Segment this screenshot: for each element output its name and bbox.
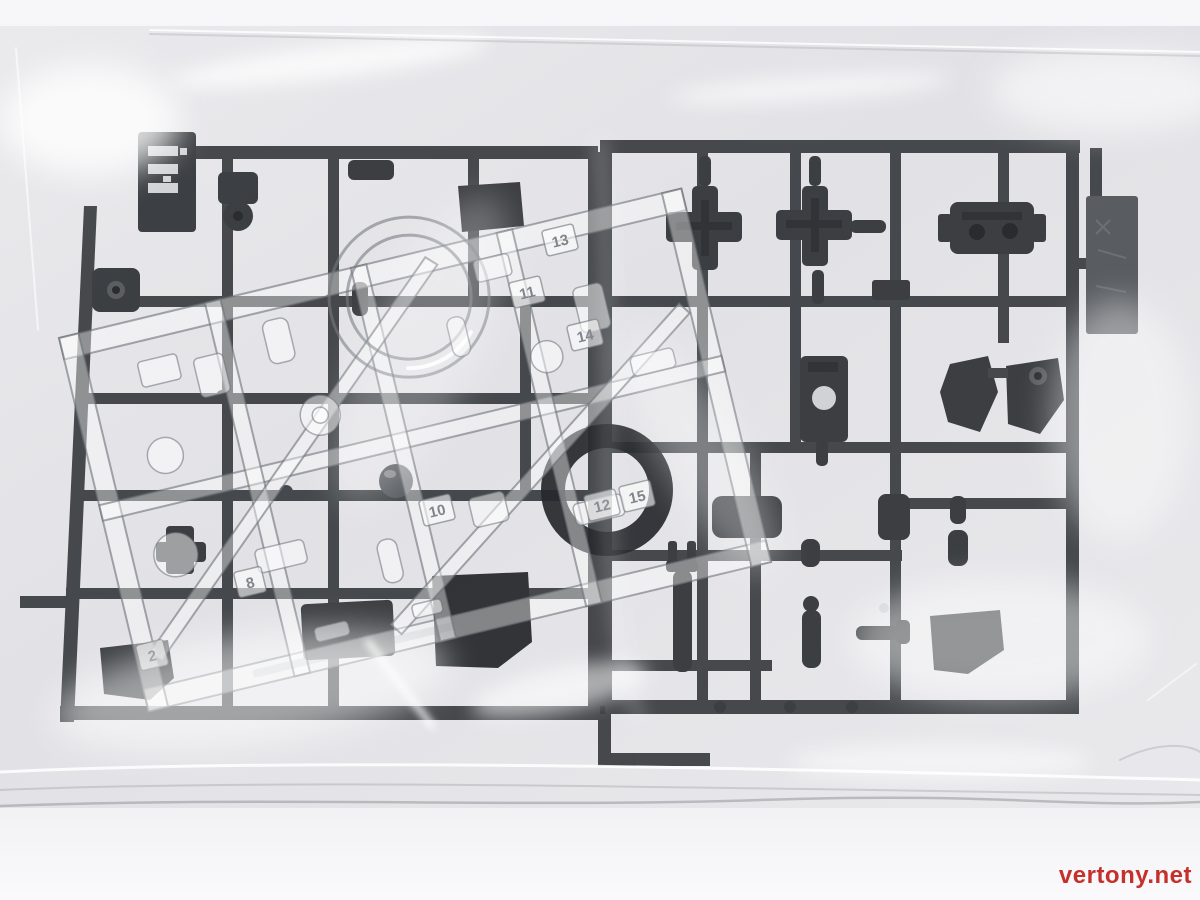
runner-bar (608, 140, 1080, 153)
bracket-wing (938, 214, 952, 242)
photo-model-kit-runners-in-bag: 13 14 11 12 15 10 8 2 vertony.net (0, 0, 1200, 900)
bag-glare (850, 580, 1150, 700)
peg-part (812, 270, 824, 304)
cylinder-part (802, 610, 821, 668)
peg-part (816, 440, 828, 466)
plate-notch (808, 362, 838, 372)
fork-part (668, 541, 677, 563)
runner-bar (598, 753, 710, 766)
peg-part (699, 156, 711, 186)
part-hole (969, 224, 985, 240)
watermark-text: vertony.net (1059, 862, 1192, 890)
runner-bar (600, 700, 1079, 714)
gate-bump (784, 701, 796, 713)
small-plate-part (872, 280, 910, 300)
part-number-tag: 8 (233, 566, 266, 598)
part-hole (1034, 372, 1042, 380)
connector-slot (786, 220, 842, 228)
part-hole (812, 386, 836, 410)
part-hole (1002, 223, 1018, 239)
bag-glare (0, 65, 180, 175)
pad-part (878, 494, 910, 540)
chain-peg-part (950, 496, 966, 524)
gate-stub (988, 368, 1008, 378)
joint-part (218, 172, 258, 204)
runner-bar (790, 153, 801, 453)
gate-bump (846, 701, 858, 713)
tab-slot (163, 176, 171, 182)
knob-part (803, 596, 819, 612)
part-hole (112, 286, 120, 294)
part-hole (233, 211, 243, 221)
photo-canvas: 13 14 11 12 15 10 8 2 (0, 0, 1200, 900)
bag-glare (1050, 300, 1190, 540)
runner-bar (222, 159, 233, 709)
bracket-part (950, 202, 1034, 254)
cylinder-part (801, 539, 820, 567)
peg-part (809, 156, 821, 186)
small-bar-part (348, 160, 394, 180)
bracket-wing (1032, 214, 1046, 242)
gate-bump (714, 701, 726, 713)
chain-peg-part (948, 530, 968, 566)
runner-bar (895, 498, 1066, 509)
runner-gate-stub (20, 596, 68, 608)
runner-bar (148, 146, 598, 159)
tab-slot (148, 164, 178, 174)
tab-slot (148, 183, 178, 193)
runner-bar (1090, 148, 1102, 198)
bracket-slot (962, 212, 1022, 220)
tab-slot (180, 148, 187, 155)
bullet-peg-part (850, 220, 886, 233)
